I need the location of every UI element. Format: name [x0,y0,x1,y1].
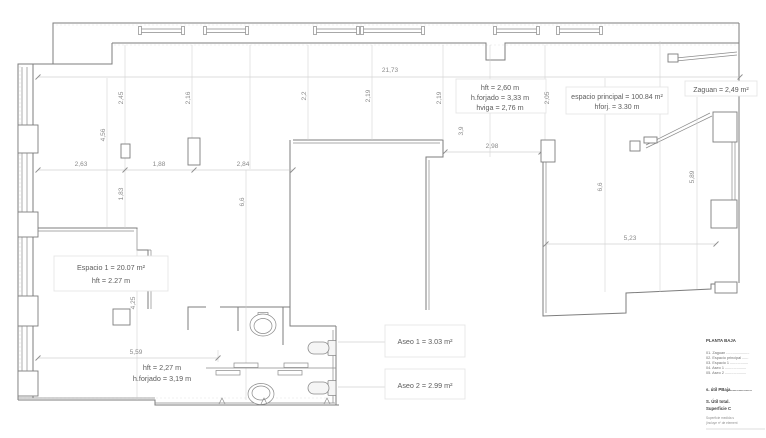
legend-item: 01. Zaguan ...................... [706,351,749,355]
legend-total2: Superficie C [706,406,731,411]
dim-559: 5,59 [130,349,143,356]
legend-item: 03. Espacio 1 ................. [706,361,748,365]
dim-425: 4,25 [130,296,137,309]
dim-298: 2,98 [486,143,499,150]
dim-219a: 2,19 [365,89,372,102]
walls [18,23,739,405]
label-espacio1-hforjado: h.forjado = 3,19 m [133,374,191,383]
dim-456: 4,56 [100,128,107,141]
label-espacio1-area: Espacio 1 = 20.07 m² [77,263,146,272]
dim-total-width: 21,73 [382,67,399,74]
legend-title: PLANTA BAJA [706,338,736,343]
dim-216: 2,16 [185,91,192,104]
legend-item: 05. Aseo 2 .................... [706,371,746,375]
label-aseo2: Aseo 2 = 2.99 m² [398,381,454,390]
legend-note: (incluye nº de element [706,421,738,425]
legend: PLANTA BAJA 01. Zaguan .................… [706,338,765,429]
dim-245: 2,45 [118,91,125,104]
dim-183: 1,83 [118,187,125,200]
legend-note: Superficie medida s [706,416,734,420]
sliding-doors-icon [206,363,336,375]
dim-66a: 6,6 [239,197,246,206]
legend-item: 04. Aseo 1 .................... [706,366,746,370]
windows [22,27,603,372]
label-main-hviga: hviga = 2,76 m [476,103,523,112]
dim-523: 5,23 [624,235,637,242]
legend-total: S. Útil total. [706,399,730,404]
label-main-hft: hft = 2,60 m [481,83,519,92]
room-labels: hft = 2,60 m h.forjado = 3,33 m hviga = … [77,83,749,390]
label-espacio-principal-height: hforj. = 3.30 m [595,104,640,111]
label-espacio1-height: hft = 2.27 m [92,276,130,285]
window-bay-icon [139,27,603,35]
floor-plan-page: 21,73 2,63 1,88 2,84 2,98 5,59 5,23 2,45… [0,0,766,438]
label-espacio-principal-area: espacio principal = 100.84 m² [571,94,663,101]
espacio1-box [54,256,168,291]
label-aseo1: Aseo 1 = 3.03 m² [398,337,454,346]
dim-263: 2,63 [75,161,88,168]
washbasin-icon [248,384,274,405]
columns [113,138,640,325]
dim-589: 5,89 [689,170,696,183]
dim-205: 2,05 [544,91,551,104]
toilet-icon [308,381,336,396]
legend-item: 02. Espacio principal ...... [706,356,748,360]
dim-39: 3,9 [458,126,465,135]
label-espacio1-hft: hft = 2,27 m [143,363,181,372]
toilet-icon [308,341,336,356]
label-boxes [54,79,757,399]
dim-284: 2,84 [237,161,250,168]
dim-22: 2,2 [301,91,308,100]
legend-subtotal: s. útil PBaja.................. [706,387,752,392]
dim-219b: 2,19 [436,91,443,104]
label-zaguan: Zaguan = 2,49 m² [693,87,749,94]
label-main-hforjado: h.forjado = 3,33 m [471,93,529,102]
dim-66b: 6,6 [597,182,604,191]
washbasin-icon [250,313,276,337]
dim-188: 1,88 [153,161,166,168]
floor-plan-svg: 21,73 2,63 1,88 2,84 2,98 5,59 5,23 2,45… [0,0,766,438]
